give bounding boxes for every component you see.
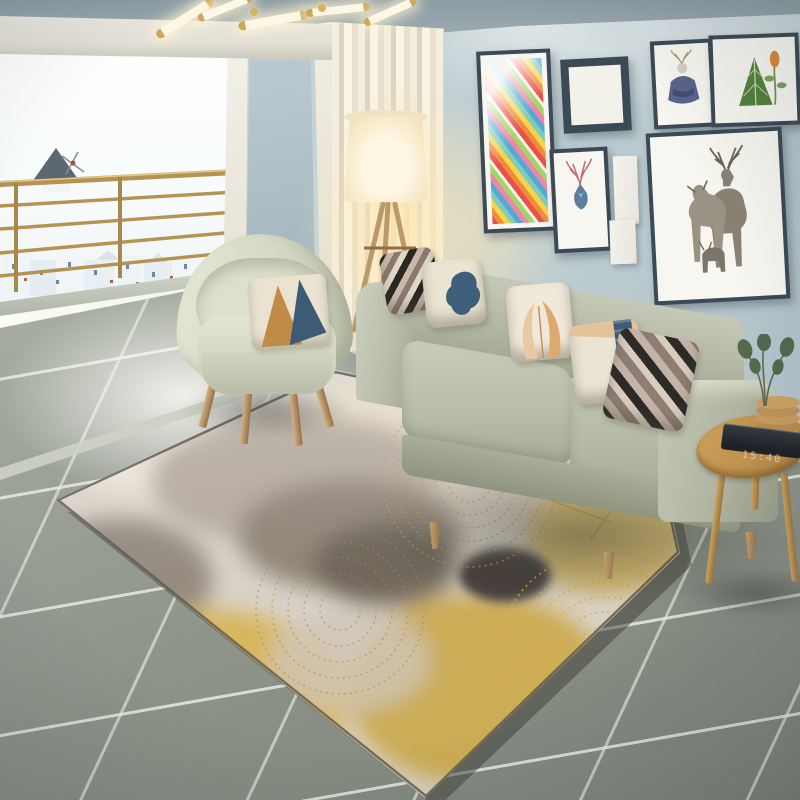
armchair-front xyxy=(202,352,332,394)
table-plant xyxy=(734,334,800,412)
living-room-photo: 15:40 xyxy=(0,0,800,800)
pillow-tulip-art xyxy=(505,281,575,362)
colorful-geometric-art xyxy=(485,58,548,224)
ceiling-light-joint xyxy=(250,8,258,16)
table-shadow xyxy=(680,568,800,616)
frame-deer-head xyxy=(549,147,612,254)
pillow-apricot-tulips xyxy=(505,281,575,362)
small-canvas xyxy=(613,156,639,225)
pillow-navy-patch xyxy=(421,257,488,329)
small-canvas xyxy=(609,220,637,265)
frame-deer-family xyxy=(646,127,791,306)
deer-family-art xyxy=(658,139,777,290)
frame-colorful-art xyxy=(476,48,558,233)
blank-art xyxy=(569,65,624,126)
sweater-deer-art xyxy=(658,47,707,114)
frame-botanical xyxy=(708,32,800,127)
armchair-pillow xyxy=(248,273,331,350)
deer-head-art xyxy=(558,155,604,231)
frame-sweater-deer xyxy=(650,38,717,129)
pillow-tan-triangle xyxy=(248,273,331,350)
botanical-art xyxy=(718,42,792,116)
pillow-patch-art xyxy=(421,257,488,329)
floor-lamp-shade xyxy=(344,116,428,202)
frame-blank-canvas xyxy=(560,56,632,133)
ceiling-light-joint xyxy=(318,4,326,12)
